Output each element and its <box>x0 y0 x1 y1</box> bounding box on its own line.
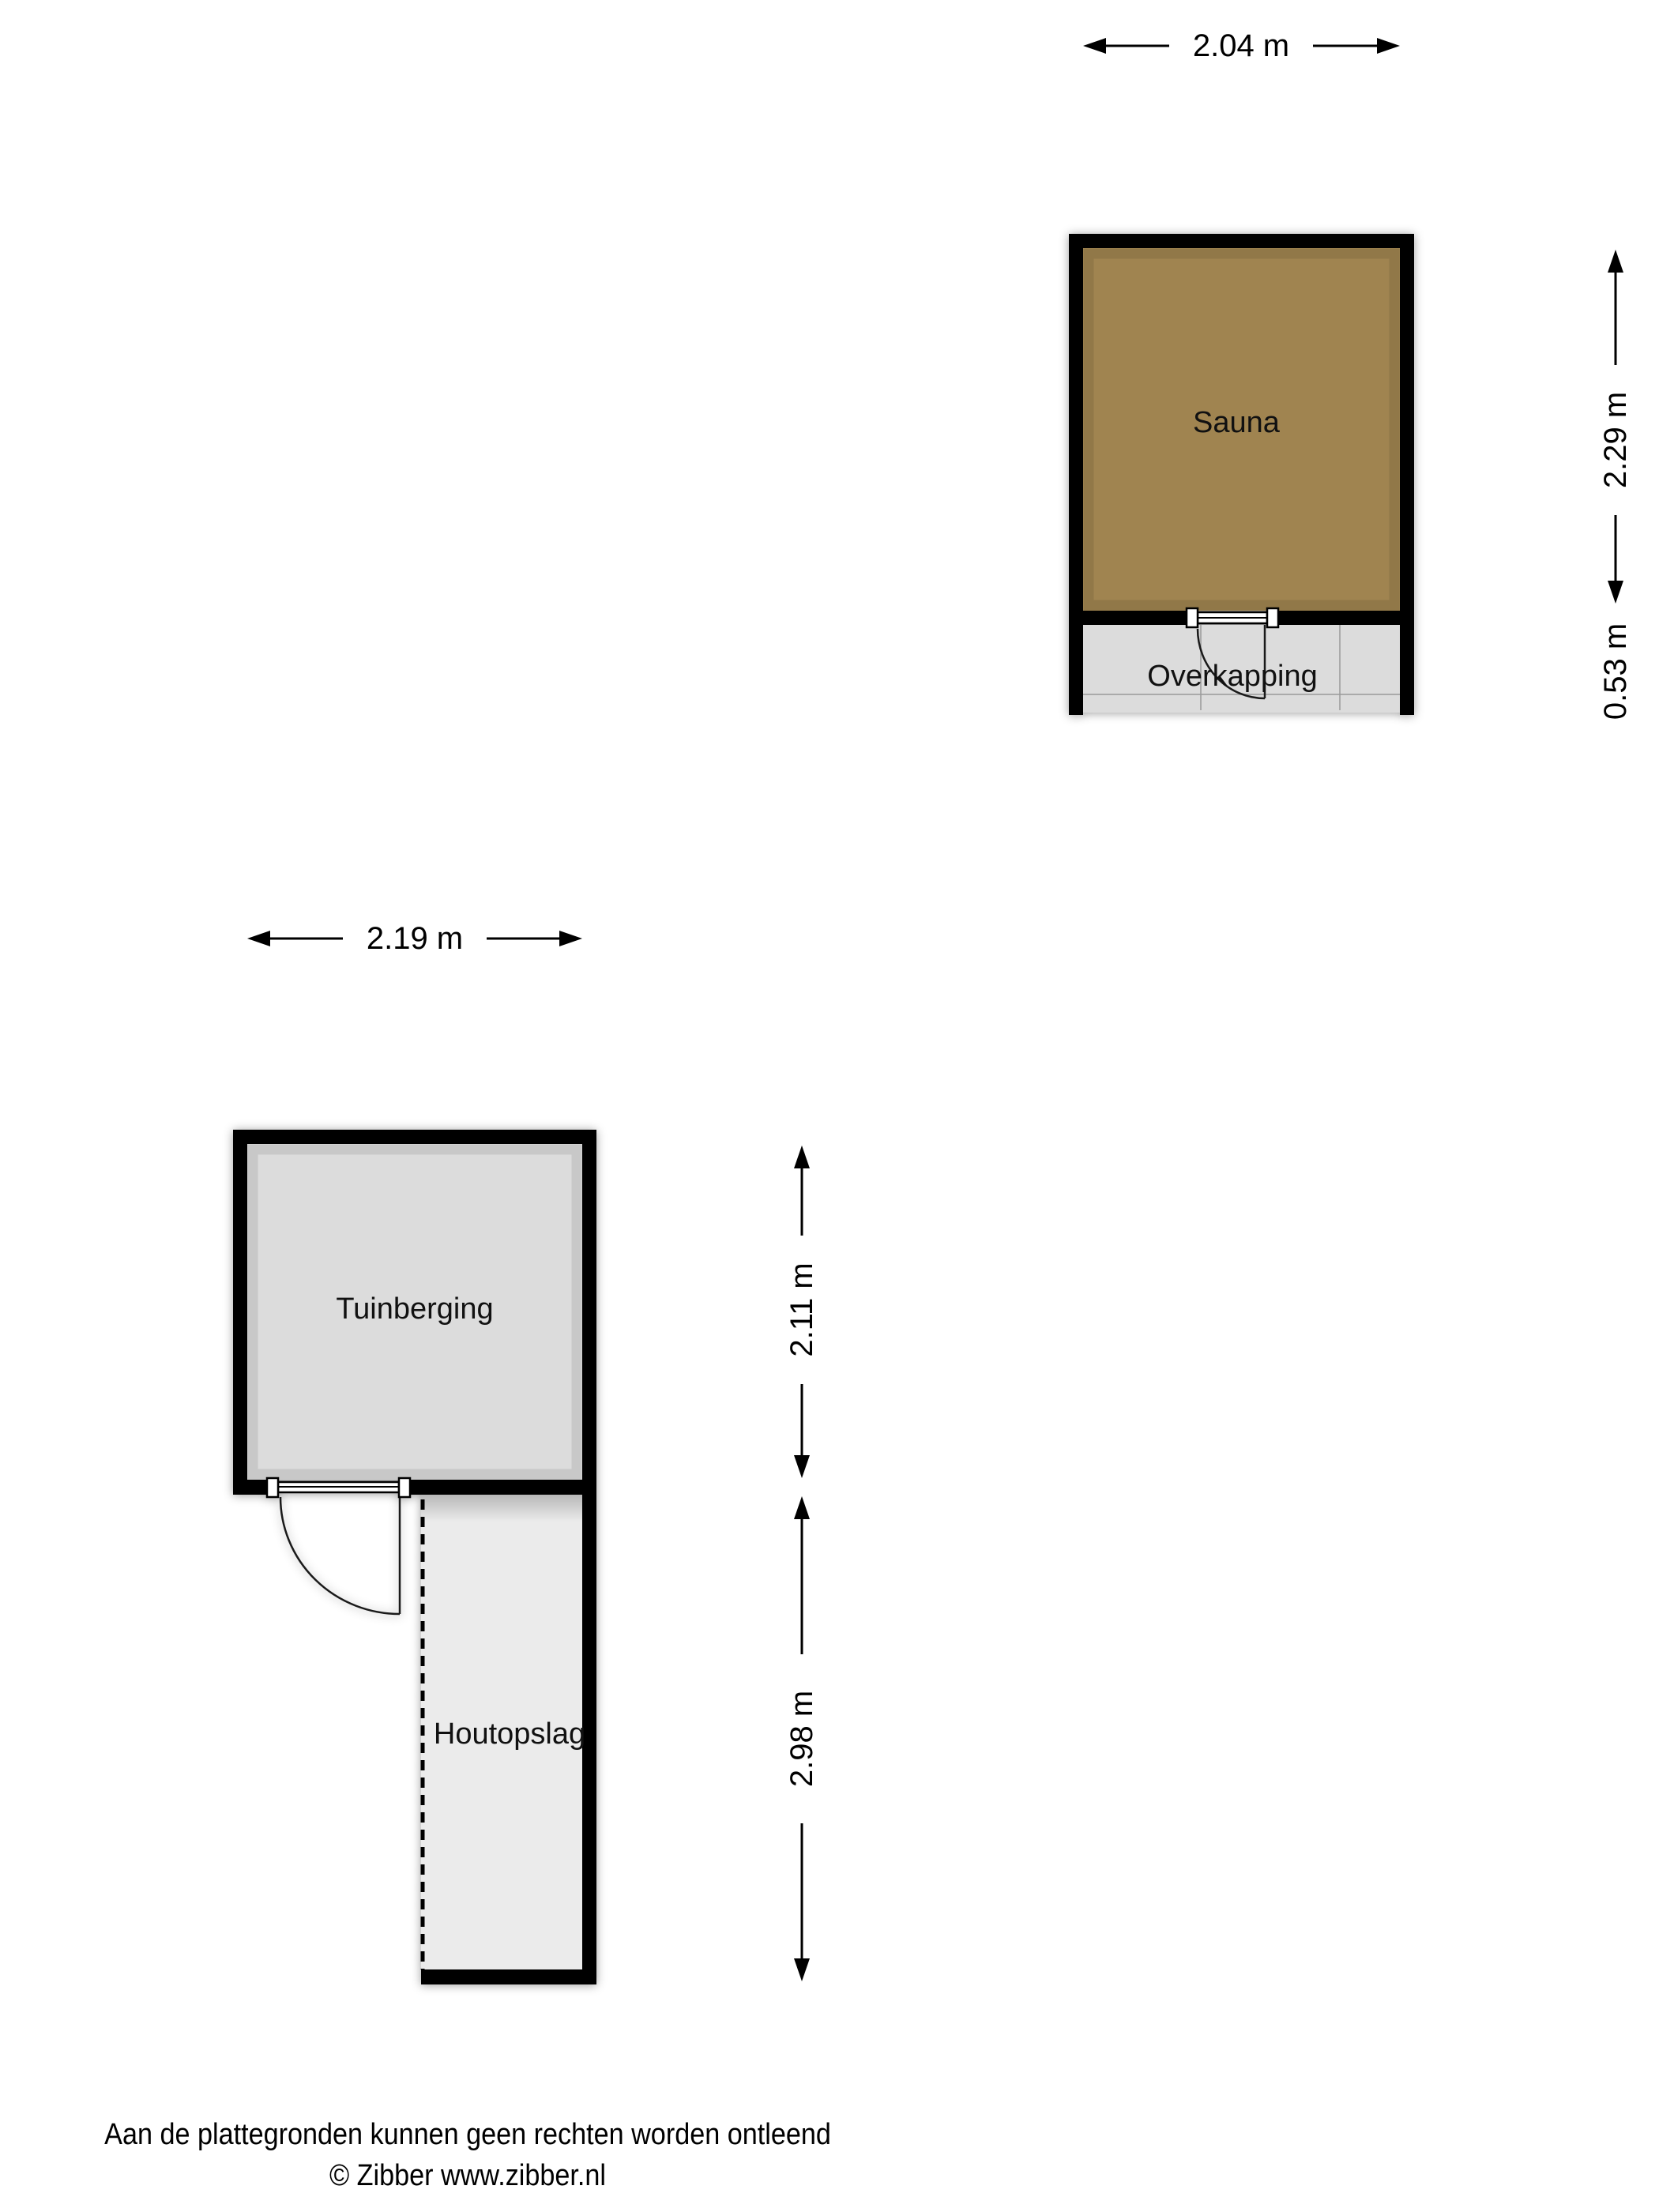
overkapping-room-label: Overkapping <box>1147 660 1317 693</box>
dimension-arrowhead-left-icon <box>1083 38 1106 54</box>
sauna-dimension-width: 2.04 m <box>1083 28 1400 63</box>
sauna-dimension-height: 2.29 m <box>1598 250 1633 604</box>
dimension-arrowhead-down-icon <box>794 1958 810 1981</box>
overkapping-depth-value: 0.53 m <box>1598 623 1633 720</box>
footer-disclaimer: Aan de plattegronden kunnen geen rechten… <box>104 2116 831 2150</box>
sauna-height-value: 2.29 m <box>1598 392 1633 488</box>
dimension-arrowhead-left-icon <box>247 931 270 946</box>
tuinberging-door-jamb-right <box>399 1478 410 1497</box>
sauna-structure <box>1069 234 1414 715</box>
sauna-door-jamb-left <box>1187 608 1198 627</box>
sauna-wall-left <box>1069 234 1083 715</box>
houtopslag-wall-shadow <box>421 1495 582 1522</box>
houtopslag-dimension-height: 2.98 m <box>784 1496 819 1981</box>
tuinberging-door-jamb-left <box>267 1478 278 1497</box>
shed-width-value: 2.19 m <box>367 921 463 956</box>
sauna-room-label: Sauna <box>1193 406 1281 439</box>
floorplan-svg: Sauna Overkapping 2.04 m 2.29 m 0.53 m <box>0 0 1659 2212</box>
dimension-arrowhead-up-icon <box>794 1145 810 1168</box>
dimension-arrowhead-right-icon <box>1377 38 1400 54</box>
tuinberging-wall-bottom-right-segment <box>410 1480 596 1495</box>
sauna-wall-bottom-right-segment <box>1278 611 1400 625</box>
houtopslag-height-value: 2.98 m <box>784 1691 819 1787</box>
shed-structure <box>233 1130 596 1984</box>
dimension-arrowhead-down-icon <box>1608 581 1623 604</box>
tuinberging-height-value: 2.11 m <box>784 1262 819 1356</box>
sauna-door-jamb-right <box>1267 608 1278 627</box>
sauna-wall-bottom-left-segment <box>1083 611 1187 625</box>
houtopslag-wall-bottom <box>421 1969 596 1984</box>
tuinberging-wall-top <box>233 1130 596 1144</box>
tuinberging-room-label: Tuinberging <box>336 1292 493 1326</box>
tuinberging-wall-bottom-left-stub <box>233 1480 267 1495</box>
tuinberging-door-swing-arc <box>280 1497 400 1614</box>
shed-wall-right <box>582 1130 596 1984</box>
dimension-arrowhead-up-icon <box>1608 250 1623 273</box>
houtopslag-room-label: Houtopslag <box>434 1717 585 1751</box>
dimension-arrowhead-up-icon <box>794 1496 810 1519</box>
dimension-arrowhead-down-icon <box>794 1455 810 1478</box>
dimension-arrowhead-right-icon <box>559 931 582 946</box>
floorplan-canvas: Sauna Overkapping 2.04 m 2.29 m 0.53 m <box>0 0 1659 2212</box>
shed-dimension-width: 2.19 m <box>247 921 582 956</box>
tuinberging-dimension-height: 2.11 m <box>784 1145 819 1478</box>
sauna-wall-top <box>1069 234 1414 248</box>
tuinberging-wall-left <box>233 1130 247 1495</box>
sauna-wall-right <box>1400 234 1414 715</box>
sauna-width-value: 2.04 m <box>1193 28 1289 63</box>
footer-credit: © Zibber www.zibber.nl <box>329 2157 606 2191</box>
